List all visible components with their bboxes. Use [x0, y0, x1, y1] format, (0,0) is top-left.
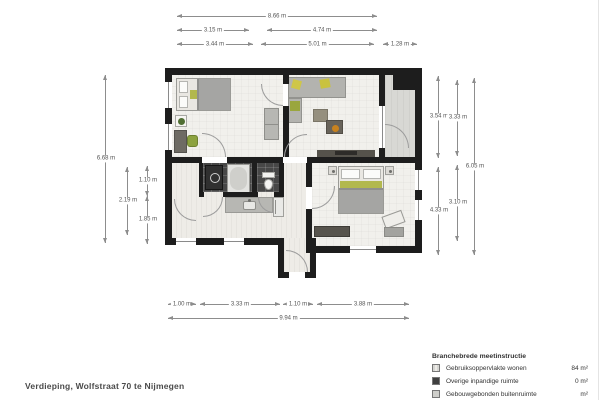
window-hall-bottom-2 — [224, 238, 244, 245]
dim-top-c: 3.44 m — [177, 44, 253, 45]
legend-row-inpandig: Overige inpandige ruimte 0 m² — [432, 377, 588, 385]
lamp-icon — [332, 170, 335, 173]
dim-top-e: 1.28 m — [383, 44, 417, 45]
pillow — [179, 96, 188, 108]
washer-door-icon — [210, 173, 220, 183]
legend-value-wonen: 84 m² — [571, 365, 588, 372]
coffee-table — [326, 120, 343, 134]
window-bedroom1-left-1 — [165, 82, 172, 108]
sofa-pillow — [290, 101, 300, 111]
wall-entrance-bottom-right — [305, 272, 316, 278]
wall-bedroom2-left-top — [306, 163, 312, 187]
sink-icon — [243, 201, 256, 210]
wall-bedroom2-left-bottom — [306, 209, 312, 253]
legend-label-buitenruimte: Gebouwgebonden buitenruimte — [446, 391, 580, 398]
plant-table — [175, 115, 187, 127]
wall-entrance-bottom-left — [278, 272, 289, 278]
cushion — [190, 90, 197, 99]
blanket — [197, 79, 230, 110]
desk-2-cabinet — [384, 227, 404, 237]
wall-bath-toilet-divider — [252, 163, 257, 192]
dim-left-total: 6.68 m — [105, 75, 106, 243]
dim-bottom-c: 1.10 m — [283, 304, 313, 305]
washing-machine — [205, 165, 223, 190]
legend-row-wonen: Gebruiksoppervlakte wonen 84 m² — [432, 364, 588, 372]
legend-label-wonen: Gebruiksoppervlakte wonen — [446, 365, 571, 372]
window-bedroom1-left-2 — [165, 124, 172, 150]
dim-right-b: 4.33 m — [438, 167, 439, 255]
plant-icon — [178, 118, 185, 125]
legend-header: Branchebrede meetinstructie — [432, 353, 588, 360]
dresser — [314, 226, 350, 237]
desk-chair — [187, 135, 198, 147]
window-bedroom2-right-2 — [415, 200, 422, 220]
wall-mid-horizontal-1 — [171, 157, 202, 163]
wall-bathroom-bottom-b — [223, 192, 258, 197]
dim-right-d: 3.10 m — [457, 165, 458, 241]
dim-right-total: 6.05 m — [474, 78, 475, 255]
dim-top-b: 4.74 m — [267, 30, 377, 31]
wardrobe — [264, 108, 279, 140]
bed-2 — [338, 166, 384, 214]
wall-bathroom-left — [199, 163, 203, 192]
dim-top-a: 3.15 m — [177, 30, 249, 31]
dim-bottom-d: 3.88 m — [317, 304, 409, 305]
dim-right-c: 3.33 m — [457, 80, 458, 156]
wall-balcony-divider-top — [379, 74, 385, 106]
blanket — [339, 188, 383, 213]
faucet-icon — [248, 199, 251, 202]
wall-bathroom-bottom-c — [274, 192, 284, 197]
tv-icon — [335, 151, 357, 155]
legend-swatch-wonen — [432, 364, 440, 372]
dim-left-a: 2.19 m — [127, 167, 128, 235]
dim-bottom-a: 1.00 m — [168, 304, 196, 305]
wall-toilet-right — [279, 163, 284, 192]
lamp-icon — [389, 170, 392, 173]
nightstand — [328, 166, 337, 175]
floorplan-page: { "page": { "title": "Verdieping, Wolfst… — [0, 0, 600, 400]
wall-balcony-divider-bottom — [379, 148, 385, 157]
dim-bottom-b: 3.33 m — [200, 304, 280, 305]
window-hall-bottom-1 — [176, 238, 196, 245]
dim-bottom-total: 9.94 m — [168, 318, 409, 319]
toilet — [262, 172, 275, 178]
legend-swatch-inpandig — [432, 377, 440, 385]
wardrobe-divider-line — [265, 124, 278, 125]
dim-top-total: 8.66 m — [177, 16, 377, 17]
wall-bed1-living-top — [283, 74, 289, 84]
pillow — [363, 169, 381, 179]
legend-swatch-buitenruimte — [432, 390, 440, 398]
fridge-handle — [275, 200, 276, 214]
nightstand — [385, 166, 394, 175]
pillow — [341, 169, 360, 179]
page-title: Verdieping, Wolfstraat 70 te Nijmegen — [25, 381, 184, 391]
wall-mid-horizontal-3 — [307, 157, 416, 163]
bed-1 — [176, 78, 231, 111]
dim-left-c: 1.85 m — [147, 196, 148, 244]
pillow — [179, 81, 188, 93]
legend-value-inpandig: 0 m² — [575, 378, 588, 385]
bowl-icon — [332, 125, 339, 132]
bed-runner — [340, 181, 382, 188]
bathtub — [227, 164, 250, 193]
dim-left-b: 1.10 m — [147, 166, 148, 196]
legend-value-buitenruimte: m² — [580, 391, 588, 398]
bathtub-basin — [230, 167, 247, 190]
sofa-pillow — [319, 78, 330, 89]
page-right-edge-line — [598, 0, 599, 400]
desk-1 — [174, 130, 187, 153]
fridge — [273, 197, 284, 217]
window-bedroom2-bottom — [350, 246, 376, 253]
dim-right-a: 3.54 m — [438, 76, 439, 158]
wall-right — [415, 68, 422, 253]
dim-top-d: 5.01 m — [261, 44, 374, 45]
legend-label-inpandig: Overige inpandige ruimte — [446, 378, 575, 385]
window-bedroom2-right-1 — [415, 170, 422, 190]
legend-row-buitenruimte: Gebouwgebonden buitenruimte m² — [432, 390, 588, 398]
legend: Branchebrede meetinstructie Gebruiksoppe… — [432, 353, 588, 403]
